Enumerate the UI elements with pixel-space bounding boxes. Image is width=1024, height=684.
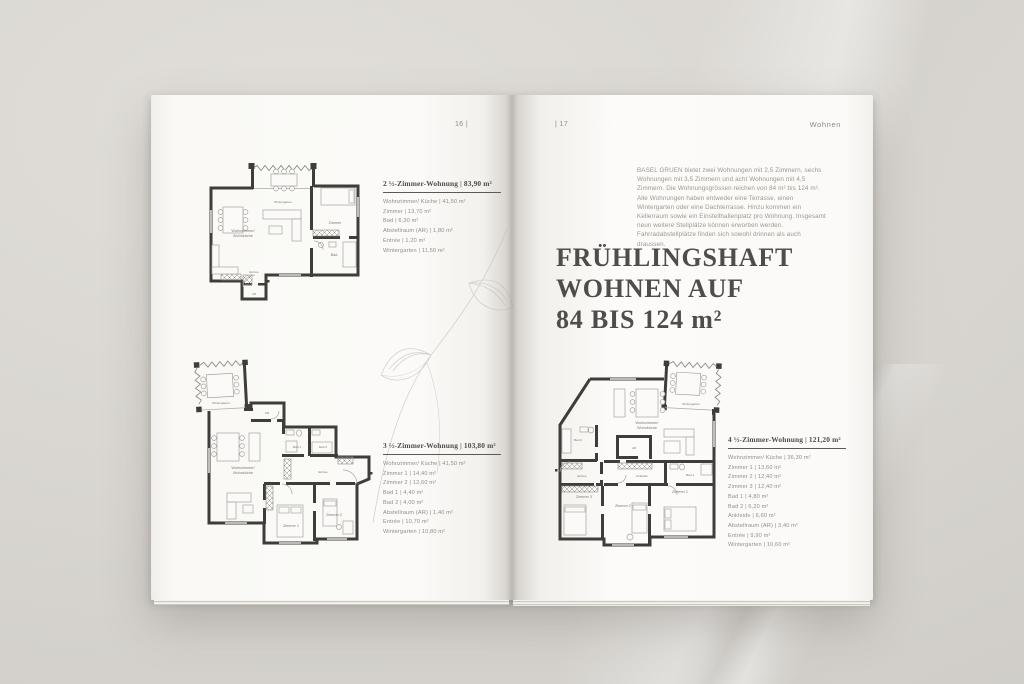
room-label-zimmer3: Zimmer 3	[576, 495, 592, 499]
room-area-item: Zimmer 3 | 12,40 m²	[728, 483, 846, 493]
room-label-wintergarten: Wintergarten	[212, 401, 230, 405]
room-label-bad2: Bad 2	[574, 438, 582, 442]
spec-title: 4 ½-Zimmer-Wohnung | 121,20 m²	[728, 435, 846, 449]
spec-title: 3 ½-Zimmer-Wohnung | 103,80 m²	[383, 441, 501, 455]
room-area-item: Zimmer 1 | 13,60 m²	[728, 464, 846, 474]
room-area-item: Abstellraum (AR) | 3,40 m²	[728, 522, 846, 532]
room-label-bad1: Bad 1	[293, 445, 301, 449]
floor-plan-3-5-zimmer: Wintergarten Wohnzimmer/ Wohnküche AR Ba…	[187, 353, 379, 558]
room-area-item: Abstellraum (AR) | 1,80 m²	[383, 227, 501, 237]
room-label-ar: AR	[252, 292, 257, 296]
headline-line-1: FRÜHLINGSHAFT	[556, 242, 793, 273]
room-area-item: Wohnzimmer/ Küche | 36,30 m²	[728, 454, 846, 464]
room-area-item: Entrée | 10,70 m²	[383, 518, 501, 528]
room-label-zimmer: Zimmer	[329, 221, 343, 225]
room-area-item: Zimmer 2 | 12,40 m²	[728, 473, 846, 483]
room-label-bad1: Bad 1	[686, 473, 694, 477]
room-area-item: Zimmer 2 | 12,60 m²	[383, 479, 501, 489]
room-area-item: Zimmer | 13,70 m²	[383, 208, 501, 218]
room-area-item: Bad | 6,30 m²	[383, 217, 501, 227]
page-edges-right	[513, 600, 870, 606]
room-area-item: Wintergarten | 10,80 m²	[383, 528, 501, 538]
room-area-item: Bad 1 | 4,40 m²	[383, 489, 501, 499]
room-area-item: Zimmer 1 | 14,40 m²	[383, 470, 501, 480]
room-label-wohnkueche: Wohnküche	[233, 234, 253, 238]
spec-title: 2 ½-Zimmer-Wohnung | 83,90 m²	[383, 179, 501, 193]
room-area-item: Bad 2 | 4,00 m²	[383, 499, 501, 509]
room-label-ar: AR	[632, 446, 637, 450]
headline-line-2: WOHNEN AUF	[556, 273, 793, 304]
room-area-item: Abstellraum (AR) | 1,40 m²	[383, 509, 501, 519]
backdrop: 16 | | 17 Wohnen	[0, 0, 1024, 684]
room-label-wohnzimmer: Wohnzimmer/	[231, 229, 255, 233]
room-label-wintergarten: Wintergarten	[682, 402, 700, 406]
room-label-entree: Entrée	[249, 270, 258, 274]
room-label-ar: AR	[265, 411, 270, 415]
page-number-left: 16 |	[455, 121, 468, 128]
room-label-zimmer1: Zimmer 1	[672, 490, 688, 494]
room-area-item: Ankleide | 6,60 m²	[728, 512, 846, 522]
spec-block-2-5-zimmer: 2 ½-Zimmer-Wohnung | 83,90 m² Wohnzimmer…	[383, 179, 501, 256]
floor-plan-4-5-zimmer: Wintergarten Wohnzimmer/ Wohnküche AR Ba…	[552, 359, 728, 551]
room-label-bad2: Bad 2	[319, 445, 327, 449]
room-label-zimmer2: Zimmer 2	[615, 504, 631, 508]
magazine-spread: 16 | | 17 Wohnen	[151, 95, 873, 600]
room-label-wohnkueche: Wohnküche	[637, 426, 657, 430]
room-label-wohnkueche: Wohnküche	[233, 471, 253, 475]
room-area-item: Wintergarten | 10,60 m²	[728, 541, 846, 551]
room-label-zimmer1: Zimmer 1	[283, 524, 299, 528]
room-area-item: Bad 2 | 6,20 m²	[728, 503, 846, 513]
room-label-entree: Entrée	[318, 470, 327, 474]
spec-block-3-5-zimmer: 3 ½-Zimmer-Wohnung | 103,80 m² Wohnzimme…	[383, 441, 501, 538]
floor-plan-2-5-zimmer: Wintergarten Wohnzimmer/ Wohnküche Zimme…	[197, 155, 373, 305]
room-label-entree: Entrée	[577, 474, 586, 478]
headline-line-3: 84 BIS 124 m²	[556, 304, 793, 335]
room-label-wintergarten: Wintergarten	[274, 200, 292, 204]
room-area-item: Wohnzimmer/ Küche | 41,50 m²	[383, 460, 501, 470]
page-edges-left	[154, 600, 509, 605]
room-area-item: Wintergarten | 11,50 m²	[383, 247, 501, 257]
section-label: Wohnen	[810, 120, 841, 129]
page-number-right: | 17	[555, 121, 568, 128]
room-label-zimmer2: Zimmer 2	[326, 513, 342, 517]
room-label-wohnzimmer: Wohnzimmer/	[231, 466, 255, 470]
room-label-bad: Bad	[331, 253, 338, 257]
spec-block-4-5-zimmer: 4 ½-Zimmer-Wohnung | 121,20 m² Wohnzimme…	[728, 435, 846, 551]
room-area-item: Bad 1 | 4,80 m²	[728, 493, 846, 503]
page-title: FRÜHLINGSHAFT WOHNEN AUF 84 BIS 124 m²	[556, 242, 793, 335]
room-label-wohnzimmer: Wohnzimmer/	[635, 421, 659, 425]
room-area-item: Entrée | 9,90 m²	[728, 532, 846, 542]
intro-paragraph: BASEL GRUEN bietet zwei Wohnungen mit 2,…	[637, 166, 829, 249]
room-area-item: Wohnzimmer/ Küche | 41,50 m²	[383, 198, 501, 208]
room-area-item: Entrée | 1,20 m²	[383, 237, 501, 247]
room-label-ankleide: Ankleide	[636, 474, 648, 478]
